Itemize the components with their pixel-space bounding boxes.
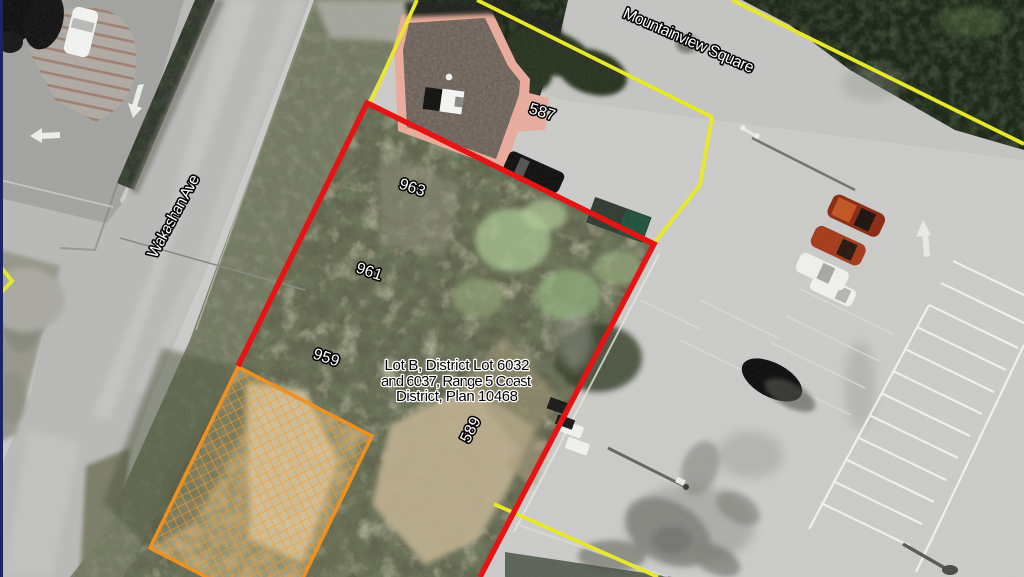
svg-text:Lot B, District Lot 6032: Lot B, District Lot 6032 [385,357,530,374]
svg-text:District, Plan 10468: District, Plan 10468 [396,388,518,405]
